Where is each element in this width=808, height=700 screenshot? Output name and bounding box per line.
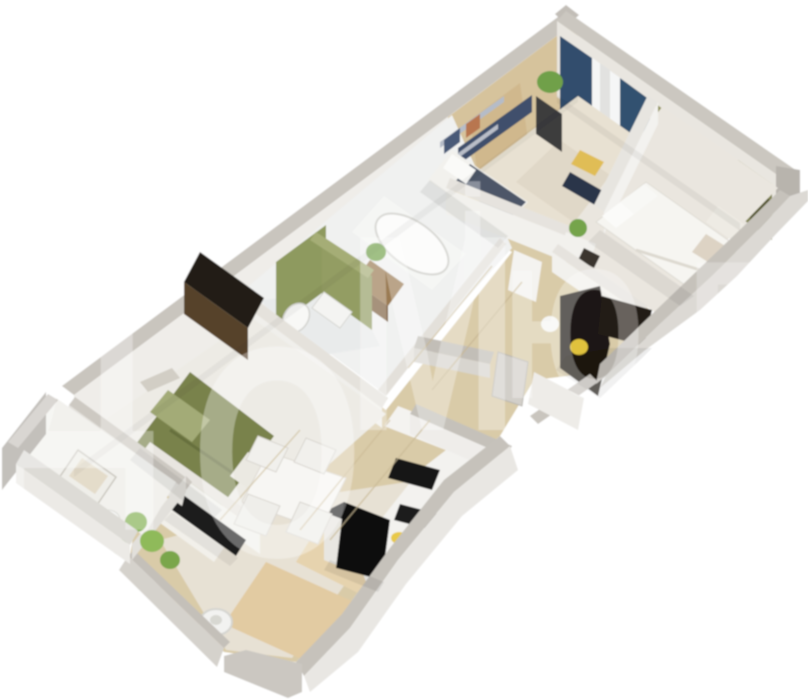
svg-text:М: М (346, 178, 519, 491)
svg-text:Д: Д (0, 187, 158, 534)
svg-text:i: i (457, 155, 488, 322)
svg-text:О: О (191, 284, 364, 619)
svg-text:Ю: Ю (503, 232, 644, 438)
svg-text:Г: Г (687, 220, 771, 443)
